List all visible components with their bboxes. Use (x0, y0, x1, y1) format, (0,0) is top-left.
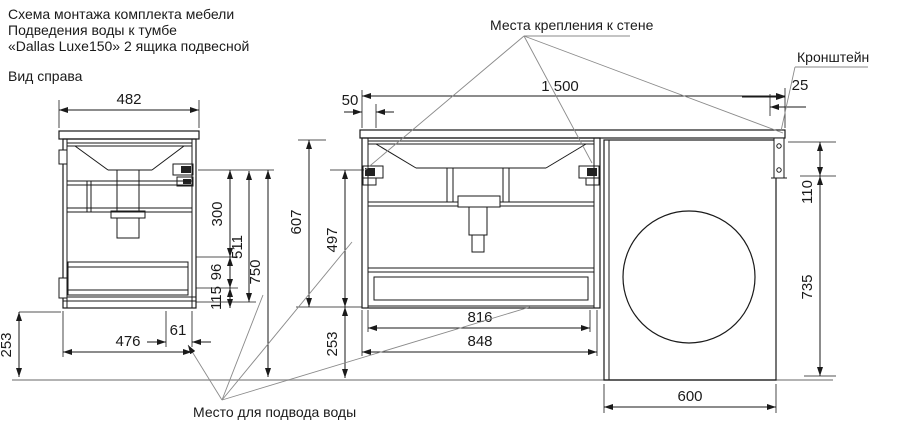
dim-607-label: 607 (288, 209, 305, 234)
furniture-mounting-diagram: Схема монтажа комплекта мебели Подведени… (0, 0, 900, 435)
countertop-side (59, 131, 199, 139)
dim-253-side-label: 253 (0, 332, 15, 357)
dim-1500: 1 500 (362, 78, 785, 128)
dim-607: 607 (288, 140, 362, 307)
dim-497-label: 497 (324, 227, 341, 252)
drain-pipe-front (368, 168, 594, 252)
dim-50-label: 50 (342, 92, 359, 109)
annotation-water-supply: Место для подвода воды (188, 242, 530, 420)
technical-drawing-page: Схема монтажа комплекта мебели Подведени… (0, 0, 900, 435)
dim-253-front: 253 (324, 307, 345, 378)
dim-482: 482 (59, 91, 199, 128)
title-line-1: Схема монтажа комплекта мебели (8, 6, 234, 22)
front-view-drawing (360, 130, 787, 380)
hinge-notch-top (59, 150, 67, 164)
dim-110: 110 (788, 142, 836, 204)
dim-25: 25 (742, 77, 808, 116)
dim-476-label: 476 (115, 333, 140, 350)
dim-482-label: 482 (116, 91, 141, 108)
title-line-2: Подведения воды к тумбе (8, 22, 177, 38)
dim-115-label: 115 (208, 286, 225, 310)
dim-735: 735 (799, 176, 836, 376)
title-block: Схема монтажа комплекта мебели Подведени… (8, 6, 249, 84)
title-line-3: «Dallas Luxe150» 2 ящика подвесной (8, 38, 249, 54)
washing-machine-door (623, 211, 755, 343)
dim-750-label: 750 (247, 259, 264, 284)
hinge-notch-bottom (59, 278, 67, 298)
dim-96-label: 96 (208, 264, 225, 281)
dim-600: 600 (604, 384, 776, 413)
dim-253-side: 253 (0, 312, 61, 377)
dim-600-label: 600 (677, 388, 702, 405)
dim-253-front-label: 253 (324, 331, 341, 356)
bracket-label: Кронштейн (797, 49, 869, 65)
dim-848-label: 848 (467, 333, 492, 350)
dim-511-label: 511 (229, 235, 246, 259)
view-label: Вид справа (8, 68, 83, 84)
wall-clip-right (579, 166, 599, 185)
side-view-drawing (59, 131, 199, 308)
countertop-front (360, 130, 785, 138)
dim-61-label: 61 (170, 322, 187, 339)
wall-mount-label: Места крепления к стене (490, 17, 654, 33)
dim-110-label: 110 (799, 180, 816, 204)
dim-511: 511 (229, 171, 249, 302)
basin-front (368, 141, 594, 168)
dim-61: 61 (147, 311, 211, 347)
drain-pipe-side (111, 170, 145, 238)
dim-750: 750 (247, 170, 268, 377)
wall-bracket (771, 138, 787, 178)
washing-machine (604, 140, 776, 380)
dim-1500-label: 1 500 (541, 78, 579, 95)
wall-clip-side (173, 164, 193, 186)
drawer-front (368, 268, 594, 306)
dim-735-label: 735 (799, 274, 816, 299)
dim-816-label: 816 (467, 309, 492, 326)
dim-816: 816 (368, 309, 590, 332)
water-supply-label: Место для подвода воды (193, 404, 356, 420)
dim-300-label: 300 (209, 201, 226, 226)
dim-497: 497 (324, 170, 364, 307)
dim-25-label: 25 (792, 77, 809, 94)
